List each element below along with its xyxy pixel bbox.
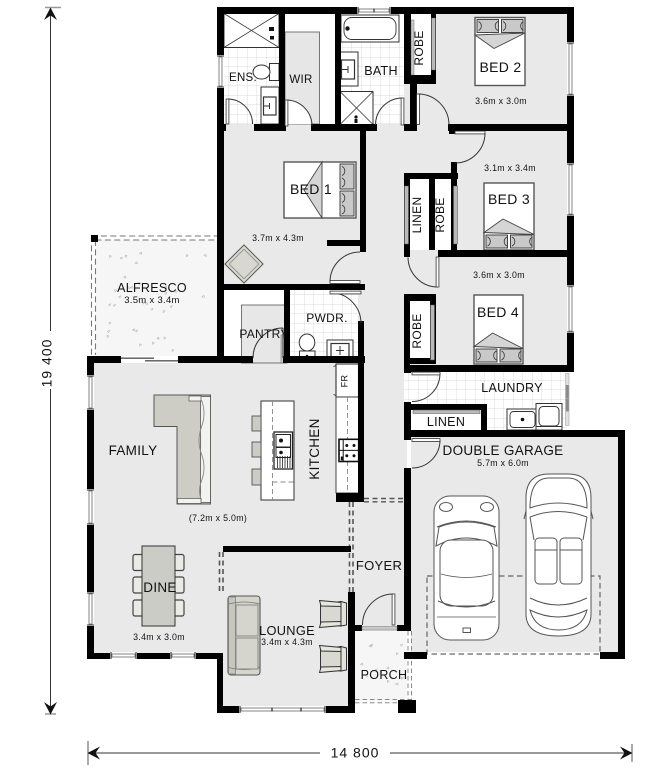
- svg-text:FOYER: FOYER: [356, 558, 402, 573]
- svg-text:3.6m x 3.0m: 3.6m x 3.0m: [473, 270, 525, 280]
- svg-text:ROBE: ROBE: [433, 197, 447, 232]
- svg-text:3.1m x 3.4m: 3.1m x 3.4m: [484, 163, 536, 173]
- svg-text:LOUNGE: LOUNGE: [259, 623, 315, 638]
- svg-text:BATH: BATH: [364, 64, 398, 78]
- svg-text:BED 3: BED 3: [488, 191, 530, 207]
- svg-text:PORCH: PORCH: [361, 668, 408, 682]
- svg-text:KITCHEN: KITCHEN: [307, 418, 322, 479]
- svg-text:ENS.: ENS.: [229, 72, 257, 84]
- svg-text:FR: FR: [340, 375, 350, 388]
- svg-text:ROBE: ROBE: [410, 313, 424, 348]
- svg-text:3.6m x 3.0m: 3.6m x 3.0m: [475, 96, 527, 106]
- svg-text:LINEN: LINEN: [410, 197, 424, 234]
- svg-text:FAMILY: FAMILY: [109, 443, 158, 458]
- svg-text:BED 4: BED 4: [477, 304, 519, 320]
- svg-text:(7.2m x 5.0m): (7.2m x 5.0m): [189, 513, 247, 523]
- svg-text:PANTRY: PANTRY: [239, 327, 288, 341]
- svg-text:14 800: 14 800: [331, 745, 380, 761]
- svg-text:3.5m x 3.4m: 3.5m x 3.4m: [124, 295, 180, 306]
- svg-text:19 400: 19 400: [39, 339, 55, 388]
- svg-text:WIR: WIR: [289, 74, 312, 86]
- svg-text:ALFRESCO: ALFRESCO: [117, 281, 187, 295]
- svg-text:PWDR.: PWDR.: [306, 311, 348, 325]
- svg-text:DOUBLE GARAGE: DOUBLE GARAGE: [443, 443, 564, 458]
- svg-text:3.4m x 4.3m: 3.4m x 4.3m: [261, 637, 313, 647]
- svg-text:ROBE: ROBE: [412, 30, 426, 65]
- svg-text:LAUNDRY: LAUNDRY: [481, 381, 543, 395]
- svg-text:LINEN: LINEN: [427, 415, 465, 429]
- svg-text:3.4m x 3.0m: 3.4m x 3.0m: [133, 632, 185, 642]
- svg-text:3.7m x 4.3m: 3.7m x 4.3m: [252, 233, 304, 243]
- svg-text:5.7m x 6.0m: 5.7m x 6.0m: [477, 458, 529, 468]
- svg-text:BED 1: BED 1: [290, 181, 332, 197]
- svg-text:BED 2: BED 2: [480, 59, 522, 75]
- svg-text:DINE: DINE: [143, 580, 176, 595]
